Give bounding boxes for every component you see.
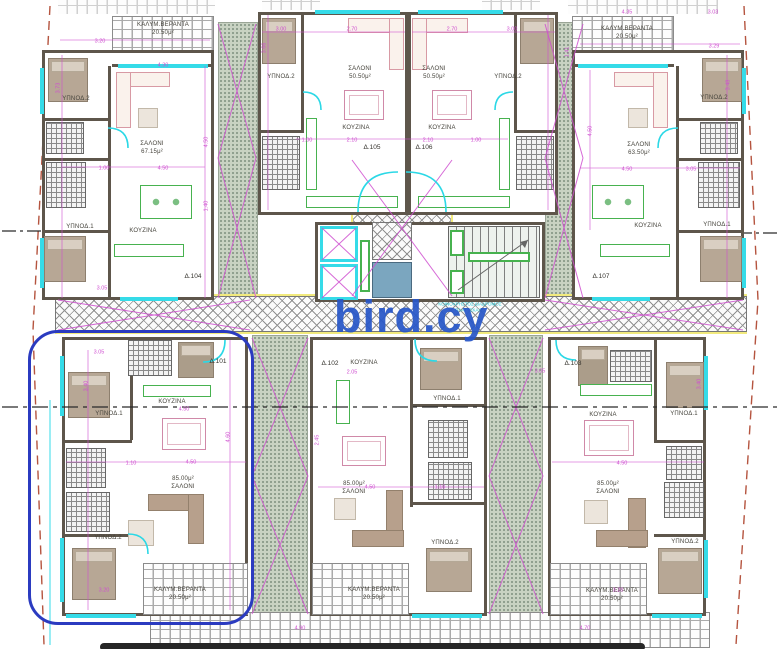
- room-label: ΚΟΥΖΙΝΑ: [350, 360, 377, 368]
- area-label: ΚΑΛΥΜ.ΒΕΡΑΝΤΑ 20.50μ²: [601, 26, 653, 42]
- dim-label: 4.50: [622, 166, 633, 173]
- dim-label: 1.00: [471, 137, 482, 144]
- dim-label: 3.05: [535, 368, 546, 375]
- dim-label: 2.70: [347, 26, 358, 33]
- room-label: ΥΠΝΟΔ.1: [703, 222, 731, 230]
- area-label: ΣΑΛΟΝΙ 63.50μ²: [627, 142, 650, 158]
- dim-label: 4.70: [580, 625, 591, 632]
- unit-label: Δ.104: [185, 273, 202, 281]
- room-label: ΥΠΝΟΔ.1: [670, 411, 698, 419]
- floor-plan: ΚΑΛΥΜ.ΒΕΡΑΝΤΑ 20.50μ²ΥΠΝΟΔ.2ΣΑΛΟΝΙ 67.15…: [0, 0, 780, 649]
- area-label: ΣΑΛΟΝΙ 50.50μ²: [348, 66, 371, 82]
- unit-101-highlight[interactable]: [28, 330, 254, 625]
- dim-label: 3.05: [97, 285, 108, 292]
- unit-label: Δ.105: [364, 144, 381, 152]
- dim-label: 3.03: [708, 9, 719, 16]
- area-label: ΣΑΛΟΝΙ 67.15μ²: [140, 141, 163, 157]
- room-label: ΥΠΝΟΔ.2: [62, 96, 90, 104]
- watermark: bird.cy: [334, 291, 489, 343]
- unit-label: Δ.107: [593, 273, 610, 281]
- unit-label: Δ.102: [322, 360, 339, 368]
- dim-label: 3.40: [696, 379, 703, 390]
- area-label: 85.00μ² ΣΑΛΟΝΙ: [342, 481, 365, 497]
- dim-label: 3.29: [709, 43, 720, 50]
- dim-label: 3.66: [261, 43, 268, 54]
- room-label: ΚΟΥΖΙΝΑ: [129, 228, 156, 236]
- bottom-bar: [100, 643, 645, 649]
- dim-label: 1.00: [99, 165, 110, 172]
- area-label: ΚΑΛΥΜ.ΒΕΡΑΝΤΑ 20.50μ²: [137, 22, 189, 38]
- dim-label: 4.90: [295, 625, 306, 632]
- room-label: ΥΠΝΟΔ.2: [431, 540, 459, 548]
- dim-label: 2.45: [314, 435, 321, 446]
- room-label: ΥΠΝΟΔ.2: [700, 95, 728, 103]
- dim-label: 1.10: [435, 484, 446, 491]
- dim-label: 4.50: [617, 460, 628, 467]
- dim-label: 2.10: [423, 137, 434, 144]
- dim-label: 1.40: [203, 201, 210, 212]
- room-label: ΚΟΥΖΙΝΑ: [634, 223, 661, 231]
- dim-label: 3.20: [95, 38, 106, 45]
- dim-label: 1.41: [564, 47, 571, 58]
- dim-label: 3.00: [276, 26, 287, 33]
- dim-label: 4.50: [158, 165, 169, 172]
- room-label: ΚΟΥΖΙΝΑ: [342, 125, 369, 133]
- dim-label: 2.05: [347, 369, 358, 376]
- room-label: ΚΟΥΖΙΝΑ: [589, 412, 616, 420]
- dim-label: 4.35: [622, 9, 633, 16]
- area-label: ΚΑΛΥΜ.ΒΕΡΑΝΤΑ 20.50μ²: [348, 587, 400, 603]
- room-label: ΥΠΝΟΔ.2: [494, 74, 522, 82]
- dim-label: 3.00: [507, 26, 518, 33]
- room-label: ΥΠΝΟΔ.2: [671, 539, 699, 547]
- dim-label: 3.05: [686, 166, 697, 173]
- dim-label: 2.70: [447, 26, 458, 33]
- unit-label: Δ.103: [565, 360, 582, 368]
- dim-label: 1.00: [302, 137, 313, 144]
- dim-label: 3.73: [55, 83, 62, 94]
- dim-label: 4.50: [365, 484, 376, 491]
- dim-label: 2.10: [347, 137, 358, 144]
- area-label: 85.00μ² ΣΑΛΟΝΙ: [596, 481, 619, 497]
- unit-label: Δ.106: [416, 144, 433, 152]
- dim-label: 4.50: [587, 126, 594, 137]
- dim-label: 3.20: [613, 587, 624, 594]
- area-label: ΣΑΛΟΝΙ 50.50μ²: [422, 66, 445, 82]
- room-label: ΥΠΝΟΔ.1: [433, 396, 461, 404]
- room-label: ΥΠΝΟΔ.1: [66, 224, 94, 232]
- room-label: ΥΠΝΟΔ.2: [267, 74, 295, 82]
- dim-label: 4.50: [203, 137, 210, 148]
- dim-label: 4.30: [158, 62, 169, 69]
- dim-label: 3.48: [725, 80, 732, 91]
- area-label: ΚΑΛΥΜ.ΒΕΡΑΝΤΑ 20.50μ²: [586, 588, 638, 604]
- room-label: ΚΟΥΖΙΝΑ: [428, 125, 455, 133]
